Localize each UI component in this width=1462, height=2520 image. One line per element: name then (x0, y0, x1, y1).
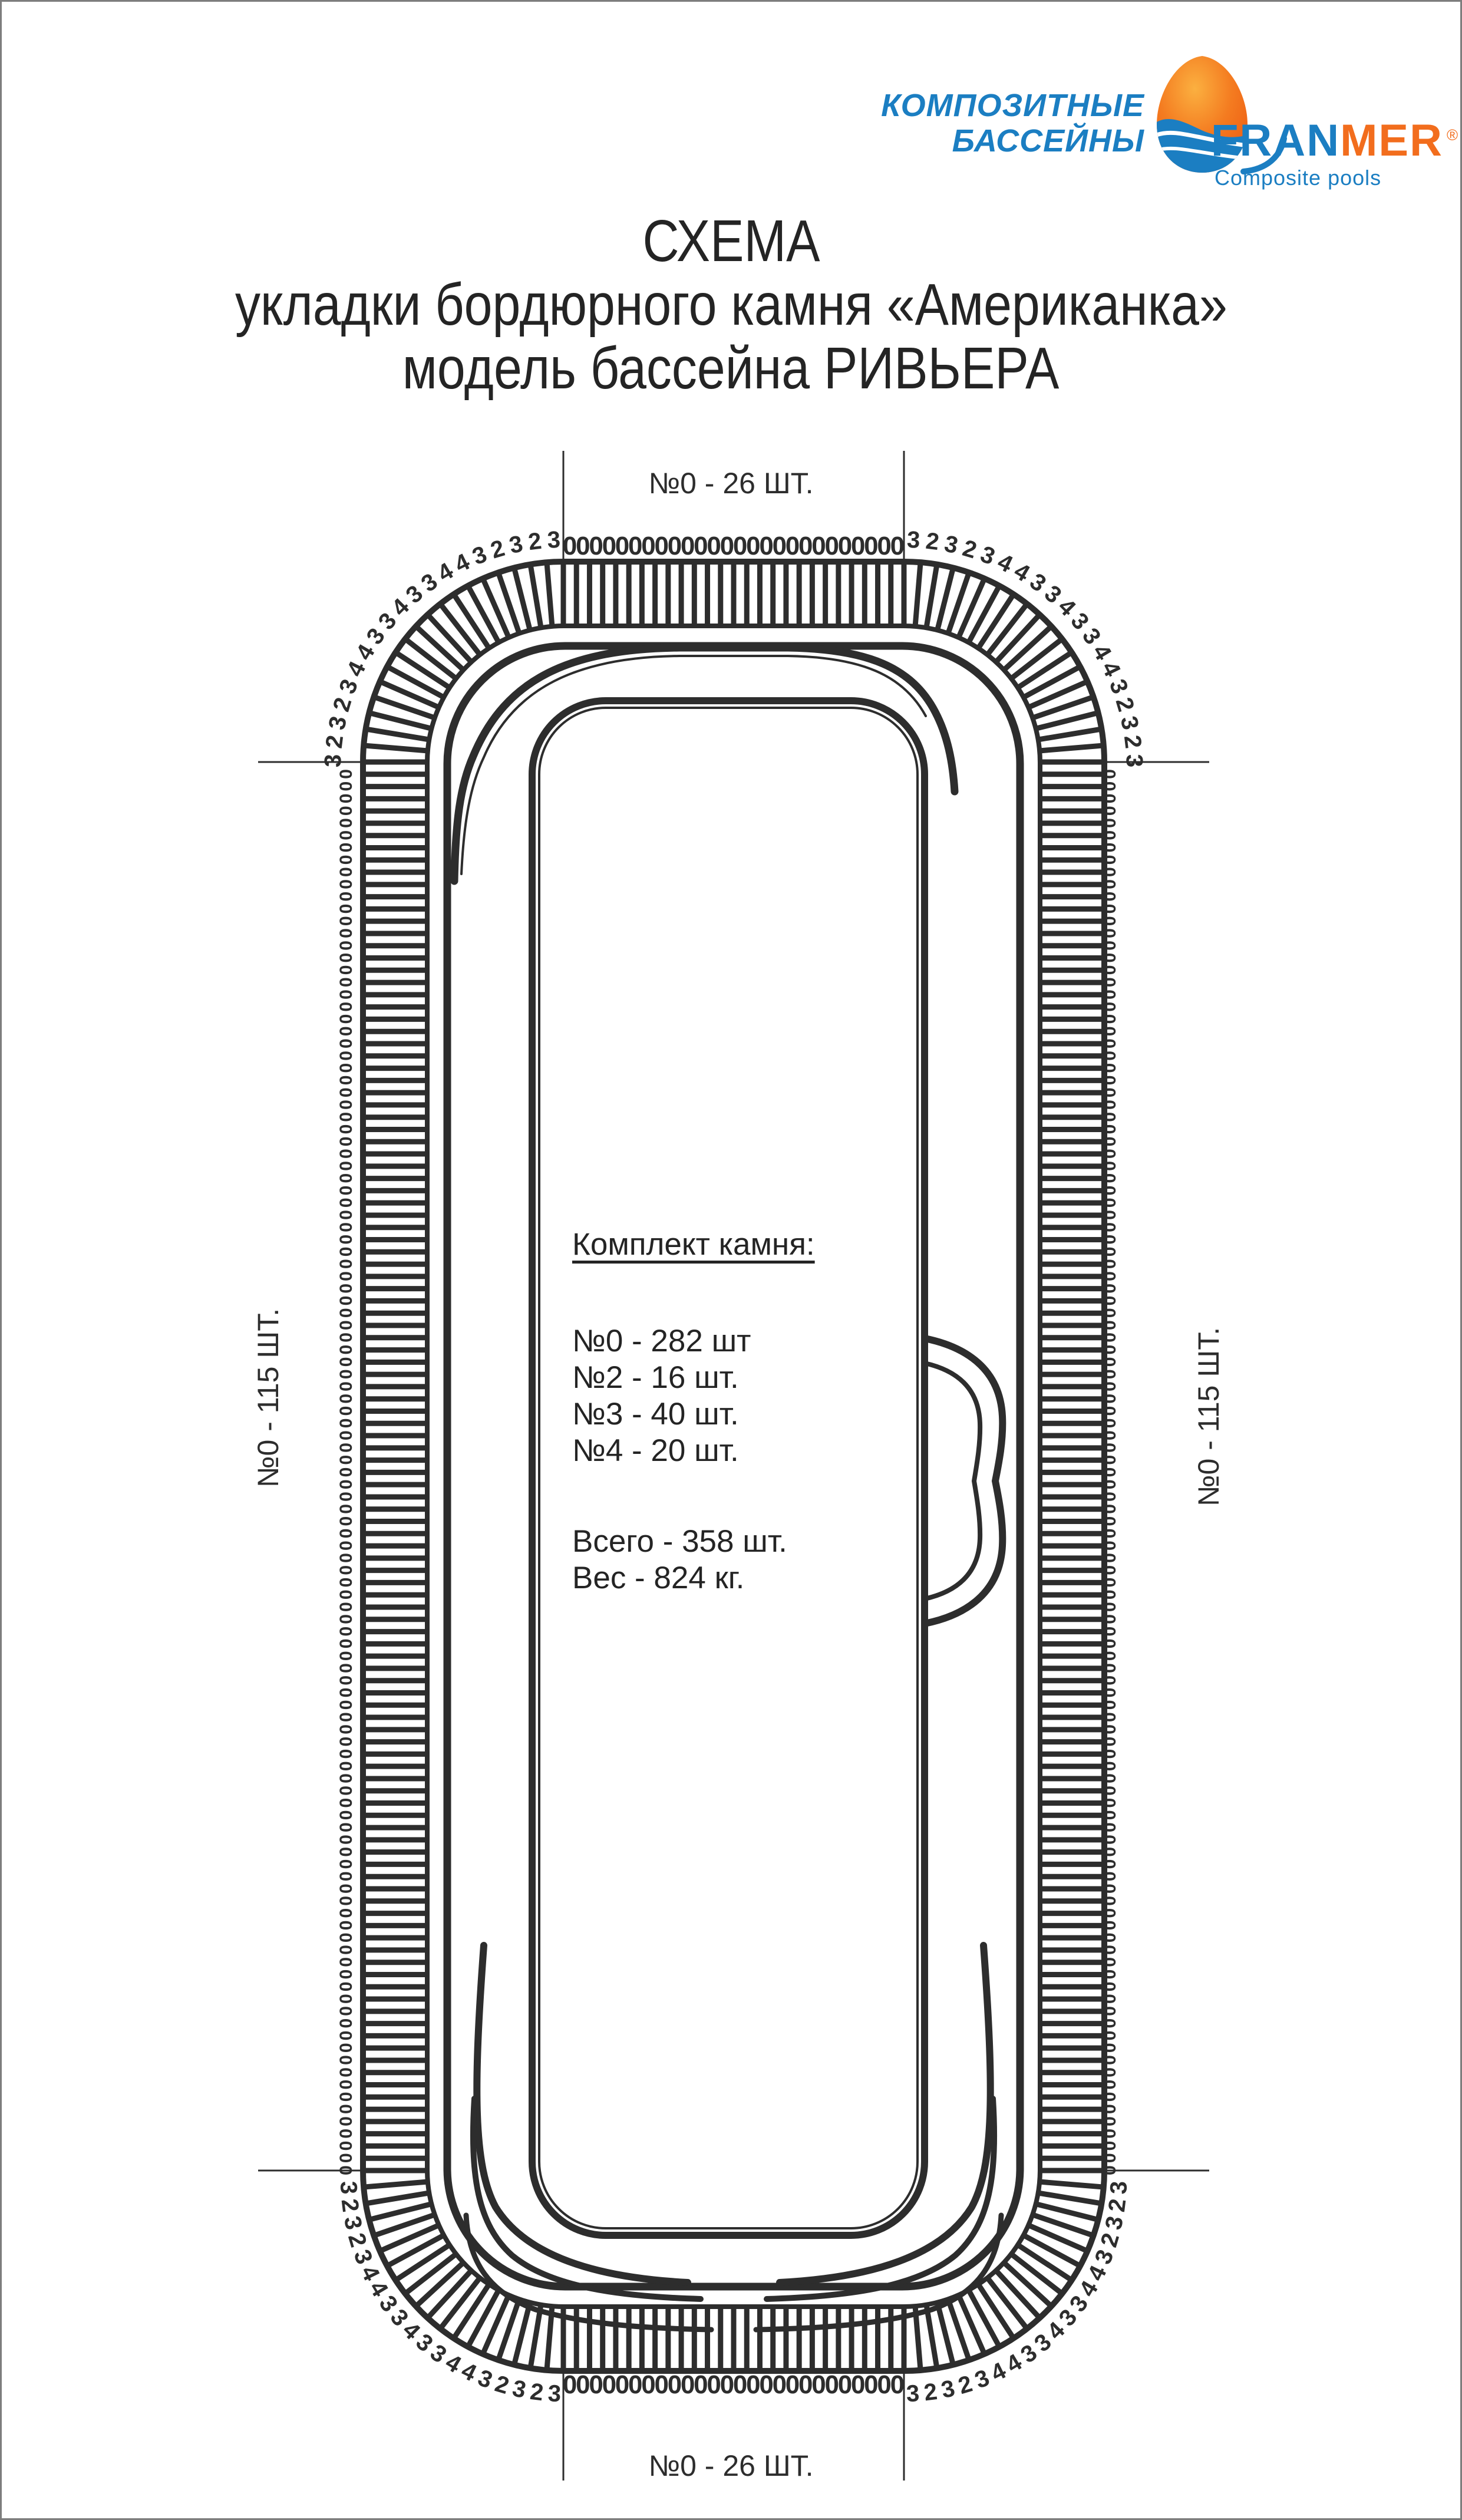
svg-text:0: 0 (336, 989, 356, 1000)
page-title: СХЕМА укладки бордюрного камня «Американ… (2, 209, 1460, 400)
svg-text:0: 0 (1100, 2031, 1120, 2041)
svg-text:0: 0 (1100, 794, 1120, 804)
svg-text:3: 3 (324, 714, 352, 732)
svg-text:2: 2 (955, 2371, 975, 2400)
logo-text-line2: БАССЕЙНЫ (881, 123, 1144, 159)
svg-text:0: 0 (1100, 1529, 1120, 1539)
svg-text:0: 0 (1100, 1957, 1120, 1967)
svg-text:0: 0 (336, 2153, 356, 2163)
svg-text:0: 0 (576, 532, 590, 560)
svg-text:0: 0 (1100, 1884, 1120, 1894)
svg-text:0: 0 (563, 532, 577, 560)
svg-text:0: 0 (1100, 2129, 1120, 2139)
svg-text:0: 0 (336, 1565, 356, 1575)
svg-text:0: 0 (1100, 953, 1120, 963)
legend-heading: Комплект камня: (572, 1226, 815, 1263)
svg-text:0: 0 (1100, 1712, 1120, 1722)
svg-text:0: 0 (838, 532, 852, 560)
svg-text:0: 0 (336, 781, 356, 791)
svg-text:0: 0 (707, 2370, 721, 2399)
svg-text:0: 0 (336, 1589, 356, 1599)
svg-text:0: 0 (628, 2370, 642, 2399)
brand-mer: MER (1340, 116, 1443, 166)
svg-text:0: 0 (1100, 892, 1120, 902)
svg-text:0: 0 (1100, 1810, 1120, 1820)
svg-text:0: 0 (1100, 769, 1120, 779)
svg-text:0: 0 (1100, 1589, 1120, 1599)
svg-text:0: 0 (641, 532, 655, 560)
svg-text:0: 0 (851, 532, 865, 560)
legend-item: №3 - 40 шт. (572, 1396, 815, 1433)
svg-text:0: 0 (1100, 1210, 1120, 1220)
svg-text:0: 0 (336, 1921, 356, 1931)
svg-text:0: 0 (1100, 977, 1120, 987)
svg-text:0: 0 (877, 2370, 891, 2399)
svg-text:0: 0 (786, 2370, 800, 2399)
svg-text:2: 2 (328, 694, 357, 714)
svg-text:0: 0 (1100, 1639, 1120, 1649)
svg-text:3: 3 (510, 2375, 529, 2403)
svg-text:2: 2 (529, 2379, 545, 2406)
svg-text:0: 0 (336, 1087, 356, 1097)
svg-text:0: 0 (1100, 1137, 1120, 1147)
svg-text:0: 0 (336, 1479, 356, 1489)
svg-text:0: 0 (336, 1394, 356, 1404)
svg-text:0: 0 (336, 1038, 356, 1048)
svg-text:0: 0 (1100, 1076, 1120, 1086)
right-edge-stone-count-label: №0 - 115 ШТ. (1192, 1269, 1226, 1564)
svg-text:0: 0 (798, 532, 813, 560)
svg-text:0: 0 (336, 1320, 356, 1330)
svg-text:0: 0 (336, 818, 356, 828)
svg-text:0: 0 (746, 532, 760, 560)
svg-text:0: 0 (336, 1773, 356, 1783)
registered-trademark-icon: ® (1447, 126, 1459, 144)
svg-text:0: 0 (336, 1198, 356, 1208)
svg-text:0: 0 (336, 1124, 356, 1134)
svg-text:0: 0 (336, 1516, 356, 1526)
svg-text:0: 0 (336, 1810, 356, 1820)
svg-text:0: 0 (811, 532, 826, 560)
svg-text:0: 0 (336, 1002, 356, 1012)
svg-text:4: 4 (451, 549, 474, 578)
svg-text:0: 0 (336, 769, 356, 779)
svg-text:0: 0 (336, 1884, 356, 1894)
svg-text:0: 0 (336, 1332, 356, 1343)
svg-text:0: 0 (1100, 1161, 1120, 1171)
svg-text:0: 0 (1100, 989, 1120, 1000)
svg-text:0: 0 (336, 1137, 356, 1147)
svg-text:0: 0 (746, 2370, 760, 2399)
svg-text:0: 0 (1100, 2080, 1120, 2090)
svg-text:0: 0 (336, 1945, 356, 1955)
svg-text:0: 0 (1100, 1492, 1120, 1502)
svg-text:2: 2 (336, 2197, 364, 2214)
svg-text:0: 0 (336, 1639, 356, 1649)
svg-text:0: 0 (1100, 818, 1120, 828)
svg-text:0: 0 (1100, 1602, 1120, 1612)
svg-text:0: 0 (336, 855, 356, 865)
svg-text:0: 0 (1100, 1149, 1120, 1159)
svg-text:2: 2 (321, 734, 348, 750)
svg-text:0: 0 (1100, 2092, 1120, 2102)
svg-text:0: 0 (1100, 1345, 1120, 1355)
svg-text:0: 0 (681, 2370, 695, 2399)
svg-text:0: 0 (1100, 855, 1120, 865)
svg-text:0: 0 (1100, 1908, 1120, 1918)
title-line3: модель бассейна РИВЬЕРА (402, 337, 1060, 400)
svg-text:0: 0 (336, 892, 356, 902)
svg-text:3: 3 (1104, 676, 1133, 698)
svg-text:0: 0 (336, 1541, 356, 1551)
svg-text:0: 0 (733, 532, 747, 560)
svg-text:0: 0 (1100, 928, 1120, 938)
svg-text:0: 0 (1100, 1859, 1120, 1869)
svg-text:0: 0 (733, 2370, 747, 2399)
svg-text:0: 0 (336, 1578, 356, 1588)
svg-text:0: 0 (1100, 1847, 1120, 1857)
svg-text:3: 3 (1116, 714, 1144, 732)
svg-text:0: 0 (1100, 1112, 1120, 1122)
svg-text:0: 0 (336, 1932, 356, 1942)
svg-text:0: 0 (1100, 1038, 1120, 1048)
svg-text:0: 0 (694, 2370, 708, 2399)
svg-text:0: 0 (1100, 843, 1120, 853)
svg-text:0: 0 (890, 2370, 905, 2399)
svg-text:0: 0 (1100, 1553, 1120, 1563)
svg-text:0: 0 (1100, 1419, 1120, 1429)
svg-text:0: 0 (1100, 1749, 1120, 1759)
svg-text:0: 0 (1100, 1932, 1120, 1942)
legend-weight: Вес - 824 кг. (572, 1560, 815, 1597)
svg-text:0: 0 (1100, 1651, 1120, 1661)
svg-text:0: 0 (1100, 1737, 1120, 1747)
svg-text:0: 0 (864, 532, 878, 560)
svg-text:2: 2 (343, 2230, 372, 2250)
svg-text:0: 0 (1100, 1357, 1120, 1367)
brand-wordmark: FRANMER® (1211, 115, 1459, 166)
svg-text:2: 2 (1104, 2197, 1131, 2214)
svg-text:0: 0 (864, 2370, 878, 2399)
svg-text:3: 3 (906, 527, 920, 553)
svg-text:0: 0 (336, 1284, 356, 1294)
svg-text:0: 0 (336, 1259, 356, 1269)
svg-text:0: 0 (1100, 830, 1120, 840)
svg-text:0: 0 (824, 2370, 839, 2399)
svg-text:0: 0 (773, 532, 787, 560)
svg-text:0: 0 (668, 2370, 682, 2399)
svg-text:0: 0 (1100, 1578, 1120, 1588)
svg-text:0: 0 (1100, 1100, 1120, 1110)
bottom-edge-stone-count-label: №0 - 26 ШТ. (2, 2449, 1460, 2483)
svg-text:0: 0 (1100, 1443, 1120, 1453)
svg-text:0: 0 (336, 1381, 356, 1391)
brand-fran: FRAN (1211, 116, 1340, 166)
svg-text:0: 0 (1100, 879, 1120, 889)
svg-text:0: 0 (694, 532, 708, 560)
svg-text:0: 0 (336, 1602, 356, 1612)
svg-text:0: 0 (336, 1822, 356, 1832)
svg-text:0: 0 (1100, 916, 1120, 926)
svg-text:0: 0 (1100, 806, 1120, 816)
svg-text:0: 0 (336, 1247, 356, 1257)
svg-text:0: 0 (336, 2141, 356, 2151)
svg-text:0: 0 (1100, 1026, 1120, 1036)
svg-text:0: 0 (1100, 781, 1120, 791)
svg-text:0: 0 (336, 1982, 356, 1992)
svg-text:0: 0 (336, 1076, 356, 1086)
svg-text:0: 0 (1100, 1921, 1120, 1931)
svg-text:0: 0 (589, 532, 603, 560)
svg-text:2: 2 (527, 528, 543, 555)
svg-text:0: 0 (1100, 1063, 1120, 1073)
svg-text:0: 0 (1100, 1198, 1120, 1208)
svg-text:0: 0 (336, 1467, 356, 1477)
svg-text:0: 0 (1100, 1222, 1120, 1232)
svg-text:0: 0 (336, 1614, 356, 1624)
svg-text:0: 0 (336, 1688, 356, 1698)
svg-text:3: 3 (1121, 754, 1147, 768)
svg-text:0: 0 (628, 532, 642, 560)
svg-text:0: 0 (1100, 1982, 1120, 1992)
pool-side-step-bump-inner (925, 1363, 980, 1599)
svg-text:0: 0 (1100, 1773, 1120, 1783)
left-edge-stone-count-label: №0 - 115 ШТ. (251, 1251, 285, 1545)
svg-text:0: 0 (602, 532, 616, 560)
svg-text:0: 0 (1100, 2043, 1120, 2053)
title-line2: укладки бордюрного камня «Американка» (235, 273, 1227, 337)
svg-text:0: 0 (1100, 1614, 1120, 1624)
svg-text:0: 0 (1100, 1259, 1120, 1269)
svg-text:0: 0 (1100, 1761, 1120, 1771)
svg-text:3: 3 (939, 2375, 958, 2403)
svg-text:0: 0 (759, 2370, 773, 2399)
svg-text:0: 0 (336, 1296, 356, 1306)
svg-text:0: 0 (1100, 1627, 1120, 1637)
svg-text:0: 0 (336, 2031, 356, 2041)
svg-text:0: 0 (336, 1161, 356, 1171)
svg-text:0: 0 (1100, 1394, 1120, 1404)
svg-text:0: 0 (1100, 1700, 1120, 1710)
svg-text:0: 0 (720, 2370, 734, 2399)
svg-text:0: 0 (336, 1369, 356, 1379)
svg-text:3: 3 (977, 541, 999, 570)
svg-text:3: 3 (1100, 2214, 1128, 2232)
svg-text:2: 2 (1096, 2230, 1125, 2250)
svg-text:0: 0 (336, 1504, 356, 1514)
top-edge-stone-count-label: №0 - 26 ШТ. (2, 466, 1460, 500)
svg-text:0: 0 (851, 2370, 865, 2399)
svg-text:3: 3 (507, 531, 525, 559)
svg-text:0: 0 (336, 1994, 356, 2004)
logo-text-line1: КОМПОЗИТНЫЕ (881, 88, 1144, 123)
svg-text:0: 0 (336, 1847, 356, 1857)
svg-text:0: 0 (1100, 867, 1120, 877)
svg-text:0: 0 (336, 1896, 356, 1906)
svg-text:0: 0 (336, 1051, 356, 1061)
svg-text:0: 0 (1100, 1663, 1120, 1673)
stone-kit-legend: Комплект камня: №0 - 282 шт №2 - 16 шт. … (572, 1226, 815, 1597)
svg-text:2: 2 (1119, 734, 1146, 750)
svg-text:3: 3 (547, 2380, 562, 2407)
svg-text:0: 0 (336, 1651, 356, 1661)
svg-text:0: 0 (336, 1712, 356, 1722)
svg-text:0: 0 (336, 1798, 356, 1808)
svg-text:3: 3 (942, 531, 961, 559)
svg-text:0: 0 (1100, 2006, 1120, 2016)
svg-text:0: 0 (336, 1835, 356, 1845)
brand-subtitle: Composite pools (1215, 166, 1381, 190)
svg-text:0: 0 (1100, 2153, 1120, 2163)
svg-text:0: 0 (1100, 1369, 1120, 1379)
svg-text:0: 0 (336, 1859, 356, 1869)
svg-text:0: 0 (615, 532, 629, 560)
svg-text:0: 0 (336, 2067, 356, 2077)
svg-text:0: 0 (336, 1675, 356, 1686)
svg-text:0: 0 (563, 2370, 577, 2399)
svg-text:0: 0 (615, 2370, 629, 2399)
legend-item: №2 - 16 шт. (572, 1360, 815, 1396)
svg-text:0: 0 (602, 2370, 616, 2399)
svg-text:0: 0 (1100, 1124, 1120, 1134)
svg-text:0: 0 (877, 532, 891, 560)
svg-text:0: 0 (336, 1149, 356, 1159)
svg-text:0: 0 (1100, 2104, 1120, 2114)
svg-text:0: 0 (1100, 1504, 1120, 1514)
svg-text:0: 0 (336, 953, 356, 963)
svg-text:0: 0 (336, 1553, 356, 1563)
svg-text:0: 0 (589, 2370, 603, 2399)
svg-text:0: 0 (336, 941, 356, 951)
svg-text:2: 2 (925, 528, 941, 555)
svg-text:0: 0 (1100, 1479, 1120, 1489)
svg-text:0: 0 (336, 1014, 356, 1024)
svg-text:0: 0 (1100, 1087, 1120, 1097)
svg-text:0: 0 (336, 867, 356, 877)
svg-text:0: 0 (1100, 1014, 1120, 1024)
svg-text:0: 0 (336, 2104, 356, 2114)
logo-text: КОМПОЗИТНЫЕ БАССЕЙНЫ (881, 88, 1144, 159)
svg-text:3: 3 (469, 541, 491, 570)
svg-text:2: 2 (960, 535, 980, 564)
svg-text:3: 3 (547, 527, 561, 553)
svg-text:0: 0 (336, 2116, 356, 2126)
svg-text:0: 0 (1100, 1051, 1120, 1061)
svg-text:0: 0 (336, 928, 356, 938)
svg-text:0: 0 (1100, 2141, 1120, 2151)
svg-text:0: 0 (336, 2129, 356, 2139)
svg-text:0: 0 (336, 2092, 356, 2102)
svg-text:0: 0 (641, 2370, 655, 2399)
svg-text:0: 0 (1100, 1247, 1120, 1257)
svg-text:0: 0 (336, 830, 356, 840)
svg-text:0: 0 (1100, 1994, 1120, 2004)
svg-text:0: 0 (1100, 1541, 1120, 1551)
svg-text:0: 0 (336, 1419, 356, 1429)
svg-text:0: 0 (336, 977, 356, 987)
legend-item: №0 - 282 шт (572, 1323, 815, 1360)
svg-text:0: 0 (336, 904, 356, 914)
svg-text:0: 0 (759, 532, 773, 560)
svg-text:0: 0 (773, 2370, 787, 2399)
svg-text:0: 0 (1100, 1381, 1120, 1391)
svg-text:3: 3 (334, 676, 363, 698)
svg-text:0: 0 (1100, 1467, 1120, 1477)
svg-text:0: 0 (720, 532, 734, 560)
svg-text:0: 0 (681, 532, 695, 560)
legend-total: Всего - 358 шт. (572, 1523, 815, 1560)
svg-text:0: 0 (336, 1345, 356, 1355)
svg-text:0: 0 (336, 1786, 356, 1796)
svg-text:0: 0 (1100, 1173, 1120, 1183)
svg-text:2: 2 (922, 2379, 939, 2406)
svg-text:0: 0 (890, 532, 905, 560)
svg-text:3: 3 (320, 754, 346, 768)
svg-text:0: 0 (336, 1210, 356, 1220)
svg-text:0: 0 (1100, 1320, 1120, 1330)
svg-text:0: 0 (576, 2370, 590, 2399)
svg-text:0: 0 (1100, 1688, 1120, 1698)
svg-text:0: 0 (336, 965, 356, 975)
svg-text:0: 0 (1100, 1871, 1120, 1881)
svg-text:0: 0 (1100, 1896, 1120, 1906)
svg-text:0: 0 (336, 2043, 356, 2053)
svg-text:0: 0 (824, 532, 839, 560)
svg-text:0: 0 (838, 2370, 852, 2399)
svg-text:0: 0 (336, 1271, 356, 1281)
svg-text:4: 4 (1097, 658, 1126, 681)
svg-text:0: 0 (1100, 2055, 1120, 2065)
svg-text:0: 0 (1100, 1970, 1120, 1980)
svg-text:0: 0 (1100, 904, 1120, 914)
svg-text:0: 0 (336, 1749, 356, 1759)
svg-text:0: 0 (336, 2055, 356, 2065)
svg-text:0: 0 (668, 532, 682, 560)
svg-text:0: 0 (1100, 1675, 1120, 1686)
svg-text:0: 0 (336, 1700, 356, 1710)
svg-text:2: 2 (487, 535, 507, 564)
svg-text:0: 0 (1100, 1332, 1120, 1343)
svg-text:0: 0 (1100, 1406, 1120, 1416)
svg-text:0: 0 (336, 879, 356, 889)
svg-text:0: 0 (336, 1026, 356, 1036)
svg-text:0: 0 (336, 1492, 356, 1502)
svg-text:0: 0 (1100, 1455, 1120, 1465)
svg-text:0: 0 (336, 1112, 356, 1122)
svg-text:0: 0 (654, 532, 668, 560)
svg-text:2: 2 (492, 2371, 512, 2400)
svg-text:0: 0 (1100, 2067, 1120, 2077)
svg-text:2: 2 (1110, 694, 1139, 714)
svg-text:0: 0 (336, 1308, 356, 1318)
svg-text:0: 0 (336, 1529, 356, 1539)
svg-text:0: 0 (336, 1100, 356, 1110)
svg-text:3: 3 (1105, 2181, 1132, 2195)
svg-text:0: 0 (1100, 1798, 1120, 1808)
svg-text:0: 0 (1100, 1822, 1120, 1832)
svg-text:0: 0 (336, 1724, 356, 1734)
svg-text:0: 0 (336, 1443, 356, 1453)
svg-text:0: 0 (336, 1357, 356, 1367)
svg-text:0: 0 (1100, 941, 1120, 951)
svg-text:0: 0 (336, 1871, 356, 1881)
svg-text:3: 3 (339, 2214, 367, 2232)
svg-text:0: 0 (654, 2370, 668, 2399)
svg-text:0: 0 (1100, 2018, 1120, 2028)
svg-text:0: 0 (336, 1222, 356, 1232)
svg-text:0: 0 (1100, 1565, 1120, 1575)
svg-text:0: 0 (336, 916, 356, 926)
